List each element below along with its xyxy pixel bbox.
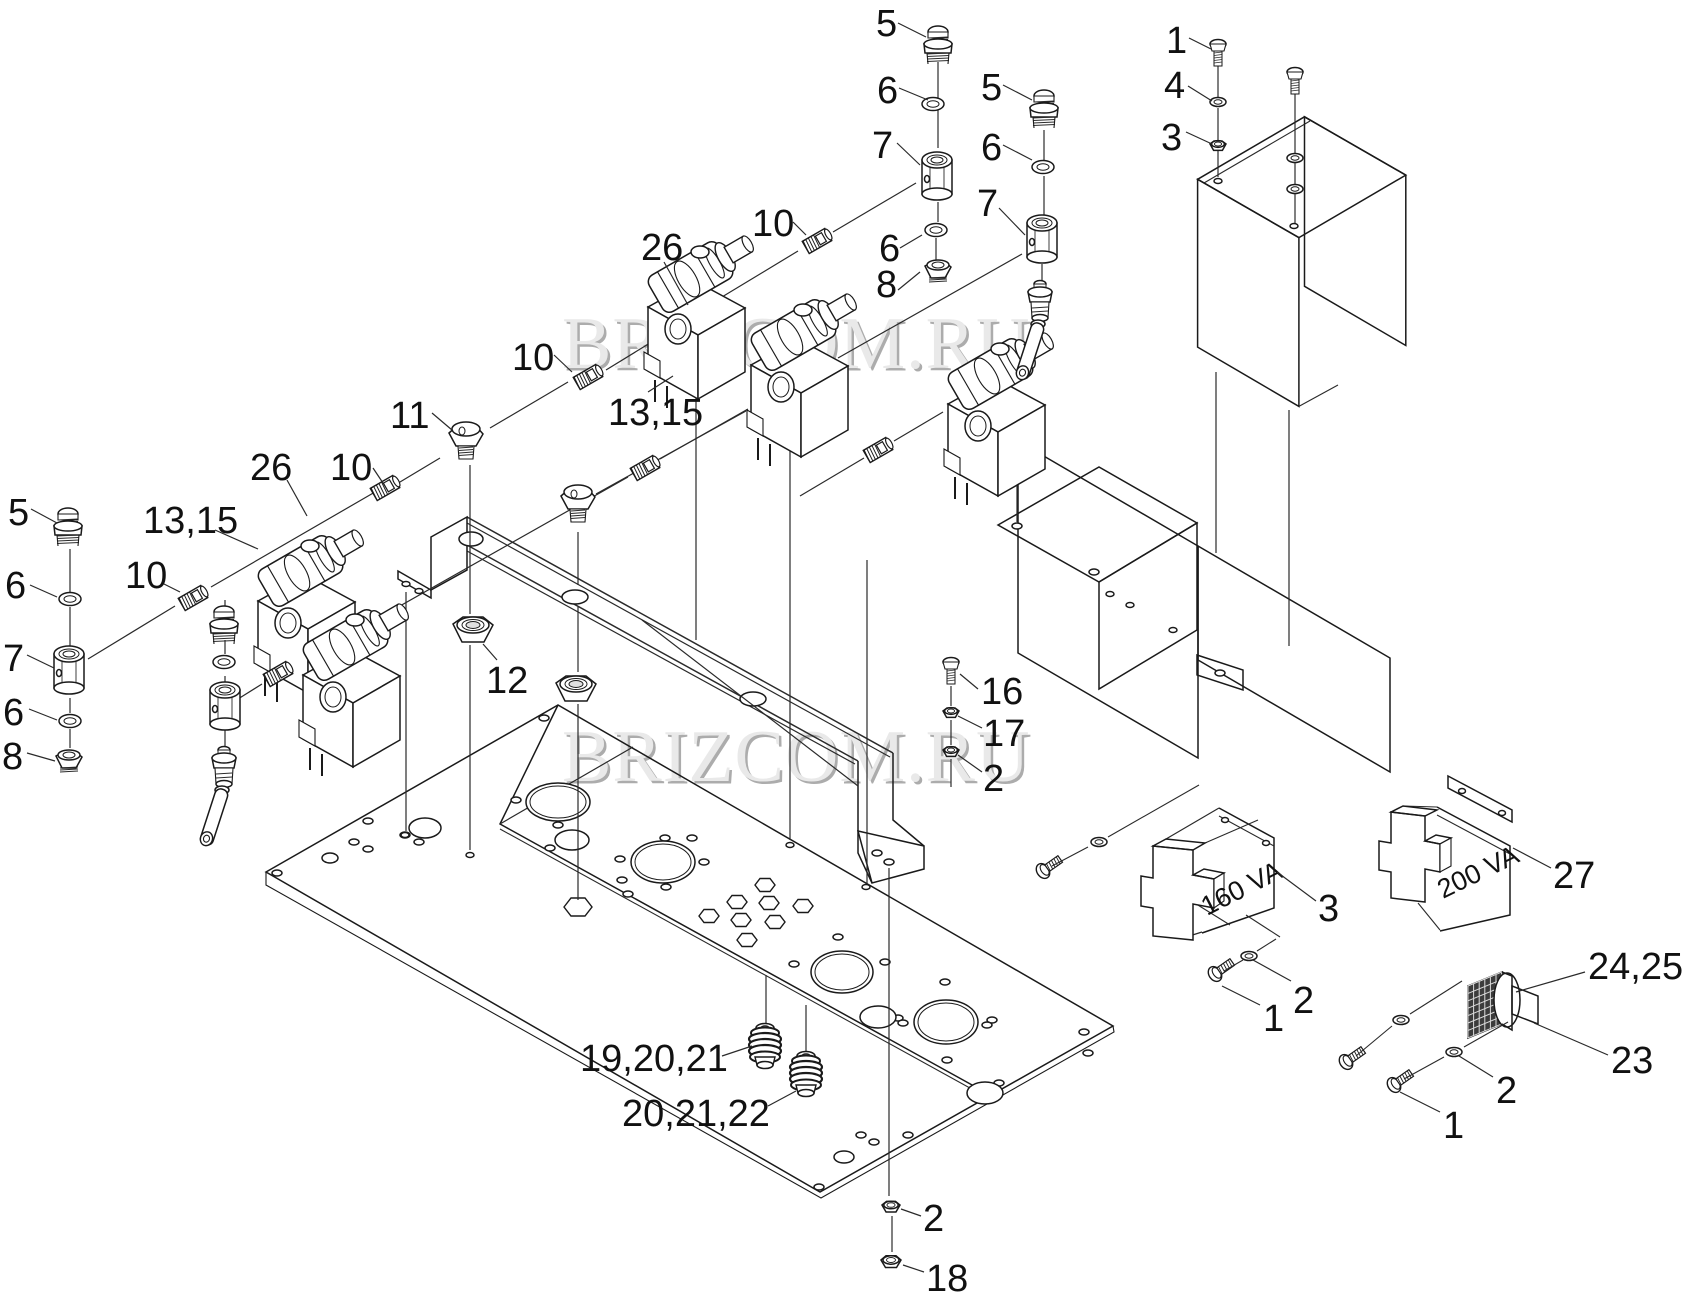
svg-text:2: 2 [983,758,1004,800]
svg-text:17: 17 [983,713,1025,755]
svg-text:6: 6 [3,692,24,734]
svg-text:3: 3 [1161,117,1182,159]
svg-text:19,20,21: 19,20,21 [580,1038,728,1080]
svg-text:10: 10 [512,337,554,379]
svg-text:2: 2 [1496,1070,1517,1112]
svg-text:13,15: 13,15 [143,500,238,542]
svg-text:5: 5 [981,67,1002,109]
svg-text:1: 1 [1263,998,1284,1040]
svg-text:12: 12 [486,660,528,702]
svg-text:1: 1 [1443,1105,1464,1147]
svg-text:16: 16 [981,671,1023,713]
svg-text:1: 1 [1166,20,1187,62]
svg-text:2: 2 [923,1198,944,1240]
svg-text:10: 10 [752,203,794,245]
svg-text:6: 6 [5,565,26,607]
svg-text:3: 3 [1318,888,1339,930]
svg-text:18: 18 [926,1258,968,1300]
svg-text:6: 6 [981,127,1002,169]
svg-text:26: 26 [641,227,683,269]
svg-text:13,15: 13,15 [608,392,703,434]
svg-text:6: 6 [877,70,898,112]
svg-text:5: 5 [8,492,29,534]
svg-text:27: 27 [1553,855,1595,897]
svg-text:8: 8 [2,736,23,778]
svg-text:2: 2 [1293,980,1314,1022]
svg-text:7: 7 [977,183,998,225]
svg-text:26: 26 [250,447,292,489]
svg-text:24,25: 24,25 [1588,946,1682,988]
svg-text:5: 5 [876,3,897,45]
svg-text:7: 7 [872,125,893,167]
svg-text:10: 10 [125,555,167,597]
svg-text:10: 10 [330,447,372,489]
svg-text:11: 11 [390,395,429,437]
svg-text:8: 8 [876,264,897,306]
svg-text:4: 4 [1164,65,1185,107]
svg-text:7: 7 [3,638,24,680]
svg-text:23: 23 [1611,1040,1653,1082]
svg-text:20,21,22: 20,21,22 [622,1093,770,1135]
